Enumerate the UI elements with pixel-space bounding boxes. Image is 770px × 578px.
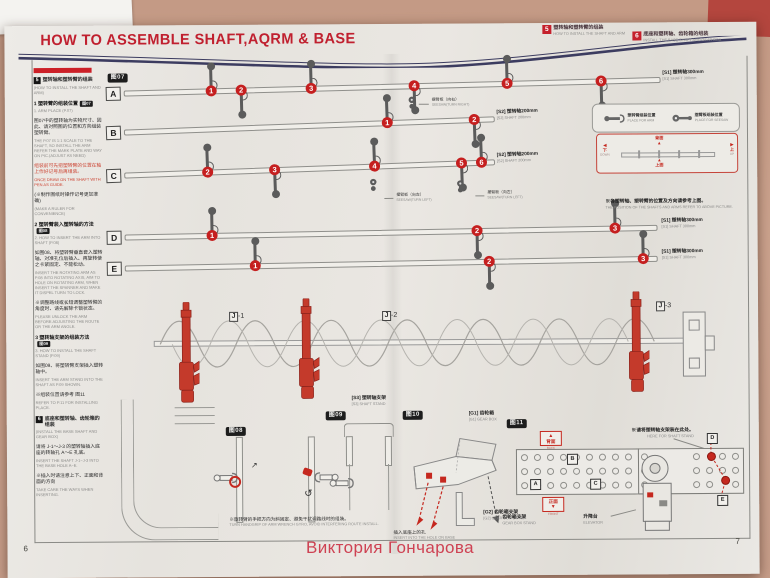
base-plate-hole [625,481,632,488]
arm-icon [473,123,477,142]
assembly-label-j3: J-3 [656,301,671,311]
shaft-stand-here-label: ※请将塑转轴支架装在此处。HERE FOR SHAFT STAND [584,428,694,439]
shaft-stand [173,302,200,404]
base-plate-hole [573,482,580,489]
leader-line [475,195,484,196]
orientation-shaft [621,152,715,158]
base-plate-hole [612,482,619,489]
base-plate-hole [693,481,700,488]
shaft-hole-marker [707,452,716,461]
shaft-part-label: [S1] 塑转轴300mm[S1] SHAFT 300mm [662,70,704,81]
instruction-step: 3 塑转轴支架的组装方法图093. HOW TO INSTALL THE SHA… [35,335,103,358]
row-letter-box: A [106,87,121,101]
instruction-note: ※插入时请注意上下、正面和背面的方向TAKE CARE THE WAYS WHE… [36,474,104,497]
seesaw-place-icon [671,113,693,123]
base-plate-hole [625,453,632,460]
hole-letter-c: C [590,479,601,490]
instruction-sec: 5塑转轴和塑转臂的组装(HOW TO INSTALL THE SHAFT AND… [34,77,102,95]
arm-place-icon [603,113,625,123]
base-plate-hole [599,468,606,475]
seesaw-place-item: 摆臂板组装位置PLACE FOR SEESAW [671,112,729,122]
base-plate-hole [547,468,554,475]
instruction-note: ※调整路线或长短调整塑转臂的角度时、请先解除卡锁状态。PLEASE UNLOCK… [35,301,103,329]
gearbox-stand-icon [448,490,478,530]
fig-ref-chip: 图08 [37,228,50,234]
gear-box-stand-label: 齿轮箱支架GEAR BOX STAND [502,515,536,525]
instruction-red: 组装前可先把塑转臂的位置在轴上作好记号后再组装。ONCE DRAW ON THE… [34,164,102,187]
orientation-back: 背面▲ [655,136,663,145]
row-letter-box: B [106,126,121,141]
stand-leg [346,436,353,466]
fig11-chip: 图11 [507,419,527,428]
base-plate-hole [693,467,700,474]
instruction-step: 2 塑转臂装入塑转轴的方法图082. HOW TO INSERT THE ARM… [35,222,103,245]
hole-letter-e: E [717,495,728,506]
instruction-body: 图07中的塑转轴为实物尺寸、因此、请对照图的位置和方向组装塑转臂。THE P.0… [34,119,102,158]
seesaw-icon [455,179,465,193]
row-letter-box: E [107,262,122,276]
red-accent-bar [34,68,92,73]
hole-letter-b: B [567,454,578,465]
instruction-body: 如图08、将塑转臂垂直套入塑转轴、对准孔位后插入、再旋转使之卡紧固定、不能松动。… [35,251,103,295]
base-plate-hole [586,468,593,475]
orientation-up: ▶上UP [730,143,734,157]
base-plate-hole [625,467,632,474]
shaft-stand [623,291,650,393]
wrench-ring-icon [229,476,241,488]
page-number-right: 7 [735,537,740,546]
fig-ref-chip: 图09 [37,341,50,347]
elevator-label: 升降台ELEVATOR [583,515,603,525]
base-plate-hole [560,454,567,461]
position-note: ※各塑转轴、塑转臂的位置及方向请参考上图。 THE POSITION OF TH… [605,199,751,210]
base-plate-hole [547,482,554,489]
leader-line [419,104,429,105]
shaft-part-label: [S1] 塑转轴300mm[S1] SHAFT 300mm [662,249,704,260]
row-letter-box: C [106,169,121,184]
fig08-chip: 图08 [226,427,246,436]
assembly-label-j1: J-1 [229,312,244,322]
base-plate-hole [521,468,528,475]
leader-line [384,198,393,199]
base-plate-hole [586,454,593,461]
shaft-stand-label: [S3] 塑转轴支架[S3] SHAFT STAND [352,396,386,406]
base-plate-hole [612,454,619,461]
arm-outline-icon [329,476,355,490]
page-number-left: 6 [23,544,28,553]
row-letter-box: D [106,231,121,245]
hole-letter-a: A [530,479,541,490]
page-title: HOW TO ASSEMBLE SHAFT,AQRM & BASE [40,30,355,49]
arm-place-item: 塑转臂组装位置PLACE FOR ARM [603,113,655,123]
instruction-body: 请将 J-1～J-3 的塑转轴插入底座的转轴孔 A～E 孔底。INSERT TH… [36,445,104,468]
instruction-note: ※组装位置请参考 图11REFER TO P.11 FOR INSTALLING… [36,393,104,410]
seesaw-icon [407,96,417,110]
shaft-part-label: [S2] 塑转轴200mm[S2] SHAFT 200mm [496,109,538,120]
instruction-body: 如图09、将塑转臂支架插入塑转轴中。INSERT THE ARM STAND I… [35,364,103,387]
base-plate-hole [693,453,700,460]
orientation-front: ▲上面 [655,158,663,167]
base-plate-hole [534,468,541,475]
front-dire ction-badge: 正面▼ FRONT [542,497,564,517]
shaft-part-label: [S2] 塑转轴200mm[S2] SHAFT 200mm [497,152,539,163]
base-plate-hole [521,482,528,489]
fig10-chip: 图10 [403,411,423,420]
hole-letter-d: D [707,433,718,444]
shaft-hole-marker [721,476,730,485]
arm-place-infobox: 塑转臂组装位置PLACE FOR ARM 摆臂板组装位置PLACE FOR SE… [592,103,740,133]
step-number-badge: 5 [542,25,551,34]
shaft-orientation-box: ◀下DOWN ▶上UP 背面▲ ▲上面 [596,133,738,174]
step-header-6: 6底座和塑转轴、齿轮箱的组装INSTALL THE BASE SHAFT AND… [632,31,742,43]
seesaw-left-label: 摆臂板（向左） SEESAW(TURN LEFT) [487,190,522,200]
arm-icon [240,94,243,113]
rotate-arrow-icon: ↺ [304,488,312,499]
arm-icon [273,173,277,192]
assembly-label-j2: J-2 [382,311,397,321]
orientation-down: ◀下DOWN [600,144,610,158]
shaft-stand [293,298,320,400]
manual-page: HOW TO ASSEMBLE SHAFT,AQRM & BASE 5塑转轴和塑… [4,22,759,578]
elevator-mechanism [633,450,686,534]
fig09-chip: 图09 [326,411,346,420]
fig-ref-chip: 图07 [80,101,93,107]
watermark-text: Виктория Гончарова [225,538,555,558]
base-plate-hole [534,454,541,461]
arm-icon [488,265,491,284]
photo-scene: HOW TO ASSEMBLE SHAFT,AQRM & BASE 5塑转轴和塑… [0,0,770,578]
fig07-chip: 图07 [108,74,128,83]
shaft-part-label: [S1] 塑转轴300mm[S1] SHAFT 300mm [661,218,703,229]
base-plate-hole [599,454,606,461]
back-direction-badge: ▲背面 BACK [540,431,562,451]
stand-leg [385,436,392,466]
seesaw-left-label: 摆臂板（向左） SEESAW(TURN LEFT) [396,193,431,203]
seesaw-right-label: 摆臂板（向右） SEESAW(TURN RIGHT) [432,97,470,107]
step-number-badge: 6 [632,31,641,40]
arm-icon [600,84,603,103]
instruction-sec: 6底座和塑转轴、齿轮箱的组装(INSTALL THE BASE SHAFT AN… [36,416,104,439]
base-plate-hole [560,482,567,489]
gearbox-label: [G1] 齿轮箱[G1] GEAR BOX [469,411,497,421]
base-corner-outline [133,399,219,529]
seesaw-icon [368,178,378,192]
base-plate-hole [521,454,528,461]
base-plate-hole [560,468,567,475]
arm-icon [476,234,479,253]
instruction-step: 1 塑转臂的组装位置图071. ARM PLACE (P.07) [34,101,102,113]
instruction-panel: 5塑转轴和塑转臂的组装(HOW TO INSTALL THE SHAFT AND… [34,68,105,503]
base-plate-hole [547,454,554,461]
arrow-up-right-icon: ↗ [251,461,258,470]
base-plate-hole [612,468,619,475]
instruction-note: (※制作图纸时操作记号更加准确)(MAKE A RULER FOR CONVEN… [34,193,102,216]
base-plate-hole [573,468,580,475]
